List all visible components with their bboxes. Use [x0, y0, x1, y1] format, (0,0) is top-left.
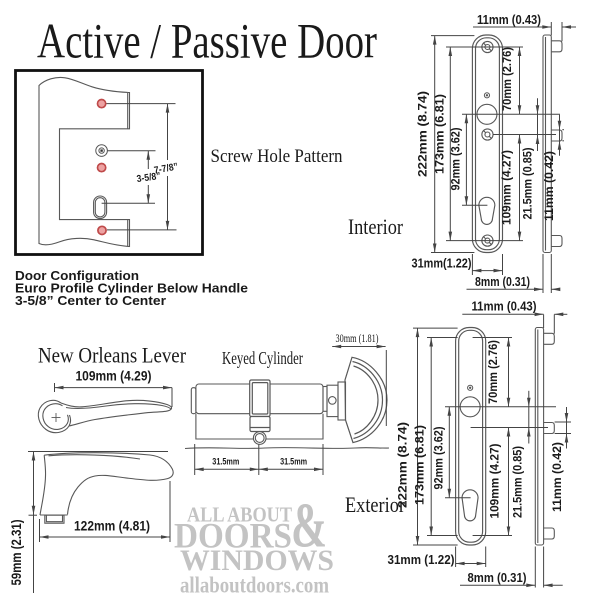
svg-text:8mm (0.31): 8mm (0.31) — [468, 570, 527, 585]
svg-text:109mm (4.27): 109mm (4.27) — [488, 444, 502, 519]
svg-text:31mm(1.22): 31mm(1.22) — [412, 256, 472, 271]
svg-text:11mm (0.42): 11mm (0.42) — [550, 442, 564, 512]
svg-text:30mm (1.81): 30mm (1.81) — [336, 331, 379, 345]
svg-text:173mm (6.81): 173mm (6.81) — [433, 94, 447, 174]
svg-text:31mm (1.22): 31mm (1.22) — [388, 552, 455, 567]
svg-text:59mm (2.31): 59mm (2.31) — [9, 520, 24, 586]
svg-text:70mm (2.76): 70mm (2.76) — [486, 340, 500, 404]
svg-text:Screw Hole Pattern: Screw Hole Pattern — [211, 146, 343, 167]
svg-text:21.5mm (0.85): 21.5mm (0.85) — [511, 446, 525, 518]
svg-text:New Orleans Lever: New Orleans Lever — [38, 343, 187, 368]
svg-text:70mm (2.76): 70mm (2.76) — [500, 47, 514, 111]
svg-text:Interior: Interior — [348, 214, 404, 239]
svg-text:Keyed Cylinder: Keyed Cylinder — [222, 348, 303, 368]
svg-text:Active / Passive Door: Active / Passive Door — [37, 13, 377, 69]
svg-text:allaboutdoors.com: allaboutdoors.com — [180, 573, 329, 598]
svg-text:92mm (3.62): 92mm (3.62) — [431, 427, 445, 490]
svg-text:109mm (4.29): 109mm (4.29) — [76, 369, 152, 384]
svg-text:8mm (0.31): 8mm (0.31) — [475, 274, 530, 289]
svg-text:173mm (6.81): 173mm (6.81) — [413, 425, 427, 505]
svg-text:3-5/8” Center to Center: 3-5/8” Center to Center — [15, 293, 166, 308]
svg-text:11mm (0.43): 11mm (0.43) — [472, 299, 537, 314]
svg-text:222mm (8.74): 222mm (8.74) — [395, 422, 409, 508]
svg-text:11mm (0.43): 11mm (0.43) — [477, 12, 541, 27]
svg-text:92mm (3.62): 92mm (3.62) — [449, 128, 463, 191]
svg-text:109mm (4.27): 109mm (4.27) — [500, 150, 514, 225]
svg-text:11mm (0.42): 11mm (0.42) — [542, 151, 556, 221]
svg-text:222mm (8.74): 222mm (8.74) — [416, 91, 430, 177]
svg-text:122mm (4.81): 122mm (4.81) — [74, 519, 150, 534]
svg-text:21.5mm (0.85): 21.5mm (0.85) — [521, 148, 535, 220]
svg-text:31.5mm: 31.5mm — [280, 457, 307, 468]
svg-text:31.5mm: 31.5mm — [212, 457, 239, 468]
